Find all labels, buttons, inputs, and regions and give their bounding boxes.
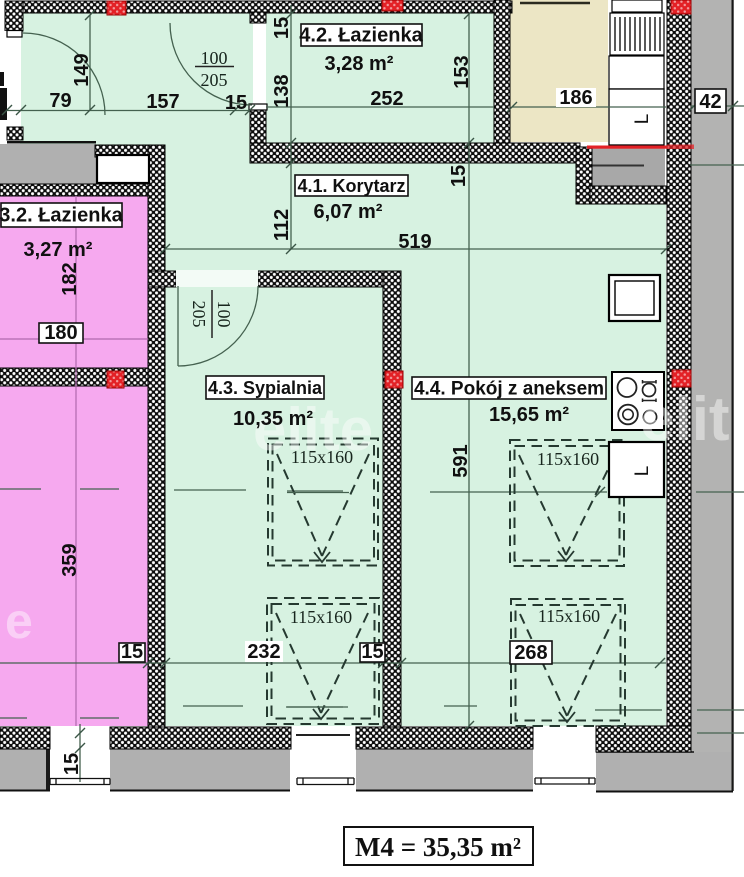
svg-text:112: 112 (271, 209, 293, 241)
svg-text:205: 205 (189, 301, 209, 328)
svg-text:15: 15 (225, 92, 247, 114)
svg-text:182: 182 (59, 262, 81, 295)
svg-text:e: e (5, 593, 33, 649)
svg-text:L: L (632, 466, 653, 477)
svg-text:591: 591 (450, 444, 472, 477)
svg-text:180: 180 (44, 322, 77, 344)
svg-text:3,27 m²: 3,27 m² (24, 239, 93, 261)
svg-text:4.3. Sypialnia: 4.3. Sypialnia (208, 378, 323, 398)
svg-text:4.2. Łazienka: 4.2. Łazienka (299, 25, 423, 47)
svg-text:115x160: 115x160 (291, 447, 353, 467)
svg-text:100: 100 (214, 301, 234, 328)
svg-text:153: 153 (451, 55, 473, 88)
svg-text:100: 100 (201, 48, 228, 68)
svg-text:186: 186 (559, 87, 592, 109)
svg-text:359: 359 (59, 543, 81, 576)
svg-text:15: 15 (121, 641, 143, 663)
svg-text:elit: elit (640, 385, 730, 454)
svg-text:15: 15 (361, 641, 383, 663)
svg-text:4.1. Korytarz: 4.1. Korytarz (297, 176, 405, 196)
svg-text:115x160: 115x160 (537, 449, 599, 469)
svg-text:268: 268 (514, 642, 547, 664)
svg-text:138: 138 (271, 74, 293, 107)
svg-text:115x160: 115x160 (538, 606, 600, 626)
svg-text:157: 157 (146, 91, 179, 113)
svg-text:149: 149 (71, 53, 93, 86)
svg-text:15: 15 (271, 17, 293, 39)
svg-text:42: 42 (699, 91, 721, 113)
svg-text:115x160: 115x160 (290, 607, 352, 627)
svg-text:M4 = 35,35 m²: M4 = 35,35 m² (355, 832, 521, 862)
svg-text:252: 252 (370, 88, 403, 110)
svg-text:79: 79 (49, 90, 71, 112)
svg-text:3.2. Łazienka: 3.2. Łazienka (0, 205, 124, 227)
svg-text:4.4. Pokój z aneksem: 4.4. Pokój z aneksem (414, 379, 604, 400)
svg-text:3,28 m²: 3,28 m² (325, 53, 394, 75)
svg-text:15: 15 (61, 753, 83, 775)
svg-text:205: 205 (201, 70, 228, 90)
svg-text:L: L (632, 114, 653, 125)
svg-text:232: 232 (247, 641, 280, 663)
svg-text:10,35 m²: 10,35 m² (233, 408, 313, 430)
svg-text:6,07 m²: 6,07 m² (314, 201, 383, 223)
svg-text:519: 519 (398, 231, 431, 253)
svg-text:15: 15 (448, 165, 470, 187)
svg-text:15,65 m²: 15,65 m² (489, 404, 569, 426)
